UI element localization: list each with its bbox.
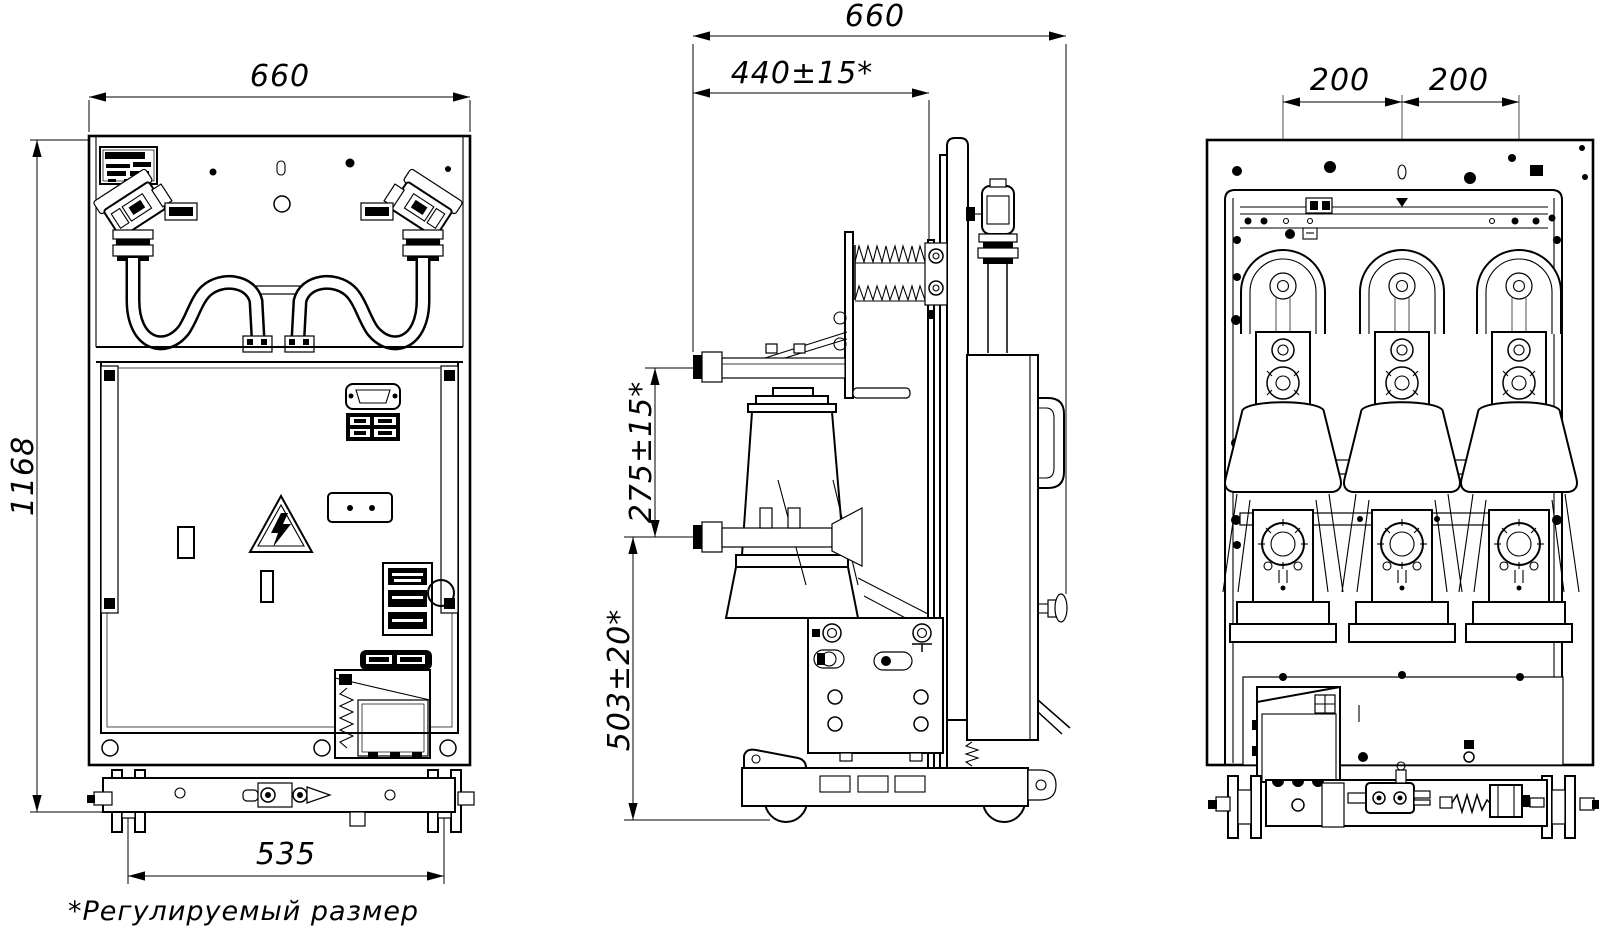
side-pole-insulator — [726, 388, 928, 630]
rear-view: 200 200 — [1207, 63, 1599, 838]
connector-tag-right — [361, 203, 393, 220]
side-upper-contact-label: 440±15* — [731, 56, 874, 91]
rating-label — [383, 563, 432, 635]
switch-label-block — [346, 413, 400, 441]
connector-collar-left — [113, 230, 153, 261]
rear-pitch-left-label: 200 — [1310, 63, 1370, 98]
front-track-label: 535 — [256, 837, 316, 872]
side-plug-cable — [966, 179, 1018, 353]
side-lower-height-label: 503±20* — [602, 609, 637, 752]
dsub-connector — [346, 384, 400, 409]
interlock-mechanism — [335, 670, 430, 759]
front-view: 660 1168 — [6, 59, 474, 884]
side-base — [742, 750, 1056, 822]
connector-collar-right — [403, 230, 443, 261]
side-depth-label: 660 — [845, 0, 905, 34]
rear-left-gearbox — [1252, 687, 1340, 782]
front-width-label: 660 — [250, 59, 310, 94]
rear-pitch-right-label: 200 — [1429, 63, 1489, 98]
footnote-adjustable-dimension: *Регулируемый размер — [68, 896, 419, 927]
upper-contact-arm — [693, 232, 910, 398]
side-pitch-dimension: 275±15* — [624, 368, 700, 537]
bellows-insulator — [855, 243, 947, 305]
front-track-dimension: 535 — [128, 818, 444, 884]
strip-label — [360, 650, 432, 670]
rear-wheel-left — [1228, 776, 1261, 838]
drawing-sheet: 660 1168 — [0, 0, 1600, 951]
rear-pole-pitch-dimensions: 200 200 — [1283, 63, 1519, 107]
side-drive-box — [808, 618, 943, 761]
side-view: 660 440±15* — [602, 0, 1070, 822]
front-height-label: 1168 — [6, 436, 41, 516]
front-carriage — [87, 770, 474, 832]
technical-drawing-circuit-breaker: 660 1168 — [0, 0, 1600, 951]
connector-tag-left — [165, 203, 197, 220]
side-pitch-label: 275±15* — [624, 381, 659, 524]
side-equipment-box — [966, 355, 1070, 766]
front-width-dimension: 660 — [89, 59, 470, 132]
plate-two-holes — [328, 493, 392, 522]
